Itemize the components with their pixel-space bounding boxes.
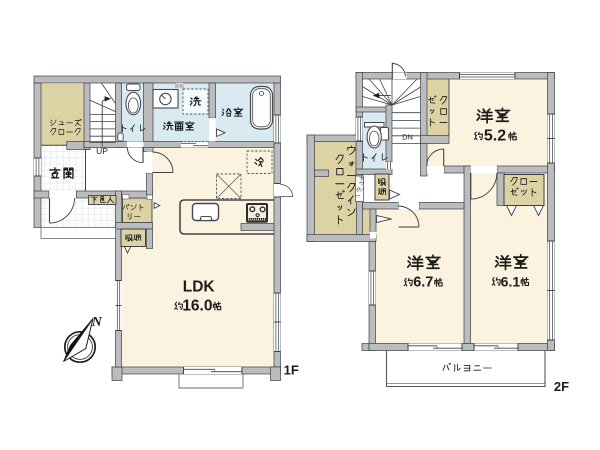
svg-text:DN: DN (402, 133, 413, 142)
svg-text:16.0: 16.0 (182, 298, 212, 315)
svg-text:1F: 1F (284, 363, 299, 378)
svg-text:6.1: 6.1 (501, 274, 521, 290)
svg-text:N: N (91, 315, 103, 330)
svg-text:6.7: 6.7 (413, 274, 433, 290)
svg-text:LDK: LDK (183, 278, 216, 295)
svg-text:2F: 2F (554, 379, 569, 394)
svg-text:5.2: 5.2 (484, 127, 506, 144)
svg-text:DS: DS (176, 83, 182, 88)
svg-text:UP: UP (96, 146, 108, 156)
